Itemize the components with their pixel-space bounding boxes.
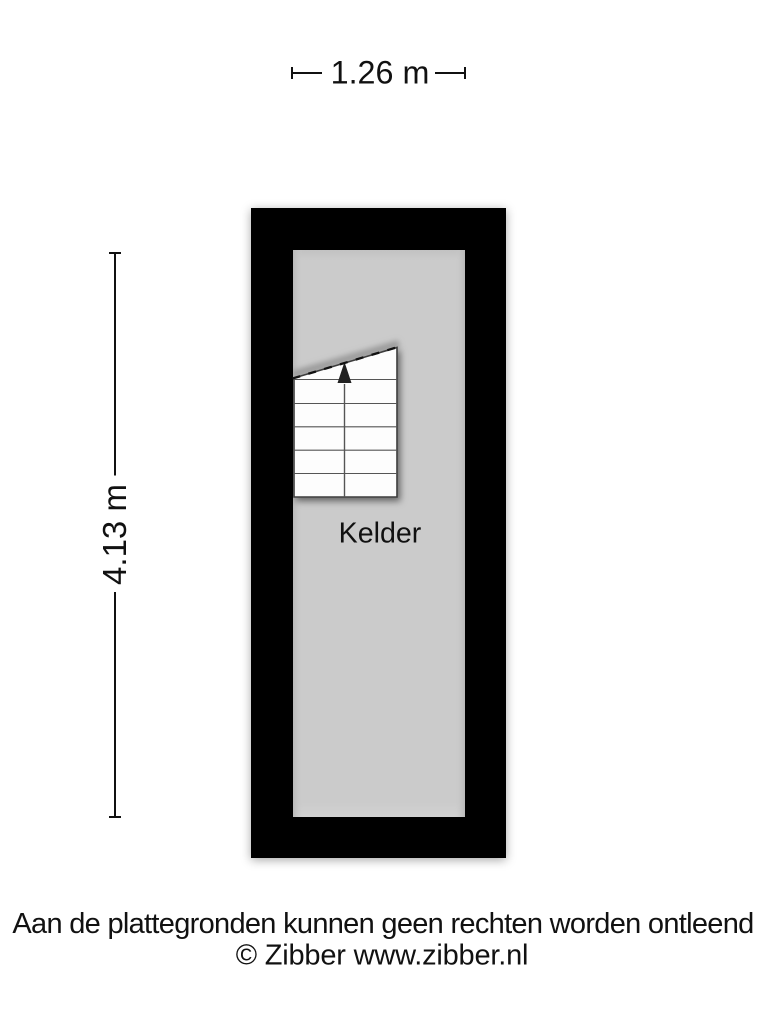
svg-text:Kelder: Kelder bbox=[339, 518, 422, 550]
svg-text:4.13 m: 4.13 m bbox=[96, 484, 133, 585]
svg-text:Aan de plattegronden kunnen ge: Aan de plattegronden kunnen geen rechten… bbox=[12, 908, 753, 940]
svg-text:© Zibber www.zibber.nl: © Zibber www.zibber.nl bbox=[236, 940, 529, 972]
svg-text:1.26 m: 1.26 m bbox=[331, 55, 430, 91]
